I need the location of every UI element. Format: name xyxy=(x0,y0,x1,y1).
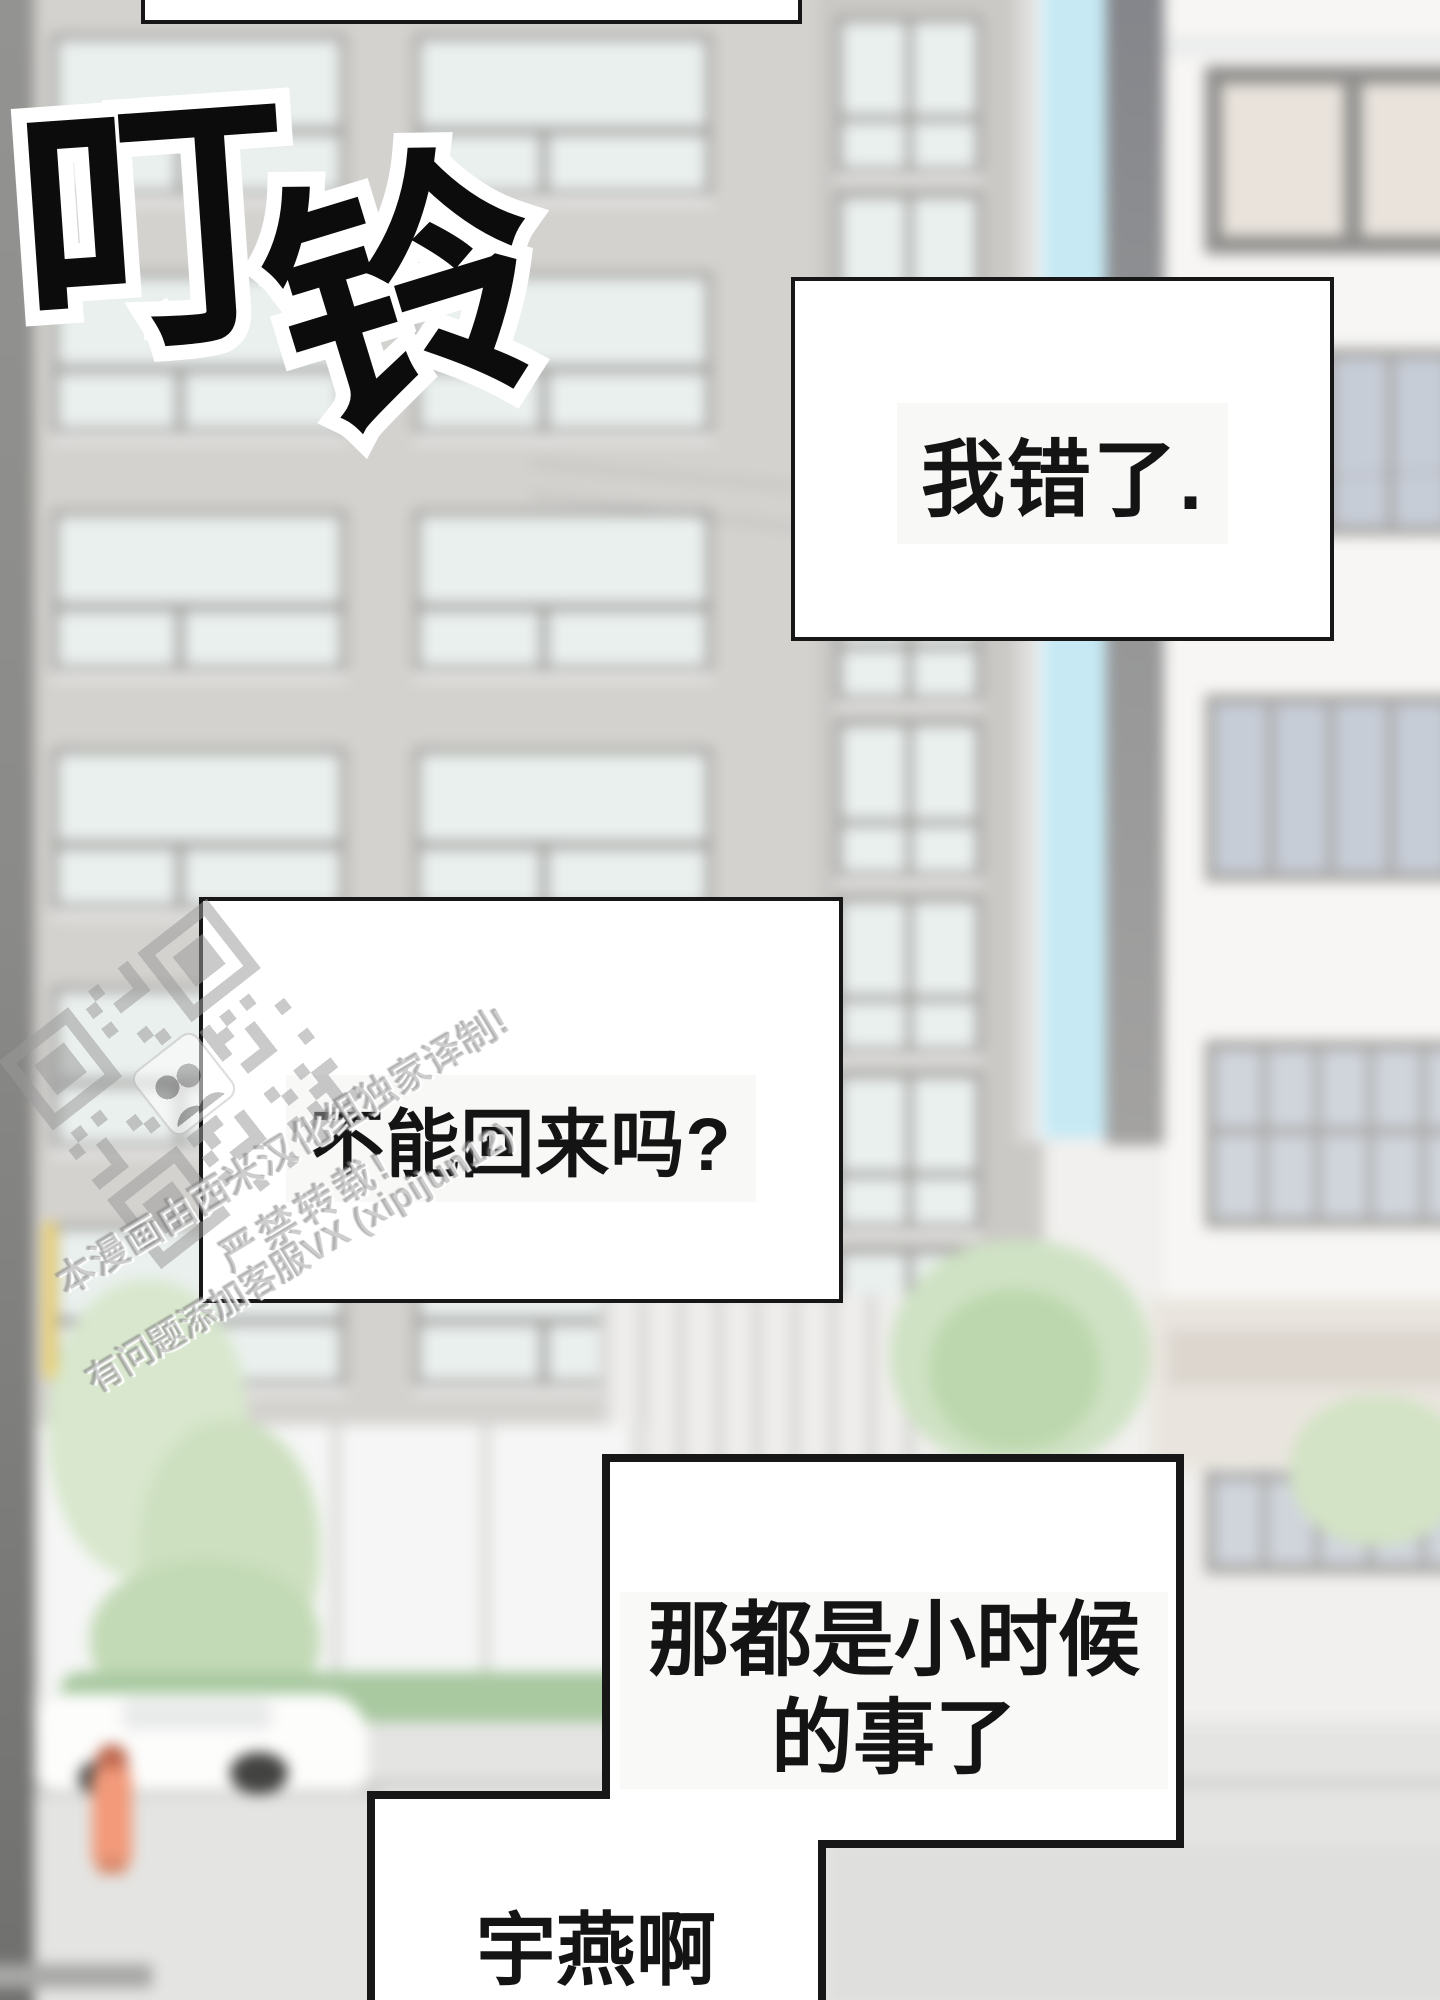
speech-text-3: 那都是小时候 的事了 xyxy=(620,1592,1168,1789)
speech-text-4-label: 宇燕啊 xyxy=(476,1906,716,1995)
speech-text-3-line1: 那都是小时候 xyxy=(620,1592,1168,1690)
speech-text-4: 宇燕啊 xyxy=(381,1886,811,2000)
manga-page: 我错了. 不能回来吗? 那都是小时候 的事了 宇燕啊 本漫画由西 xyxy=(0,0,1440,2000)
speech-text-3-line2: 的事了 xyxy=(620,1690,1168,1788)
